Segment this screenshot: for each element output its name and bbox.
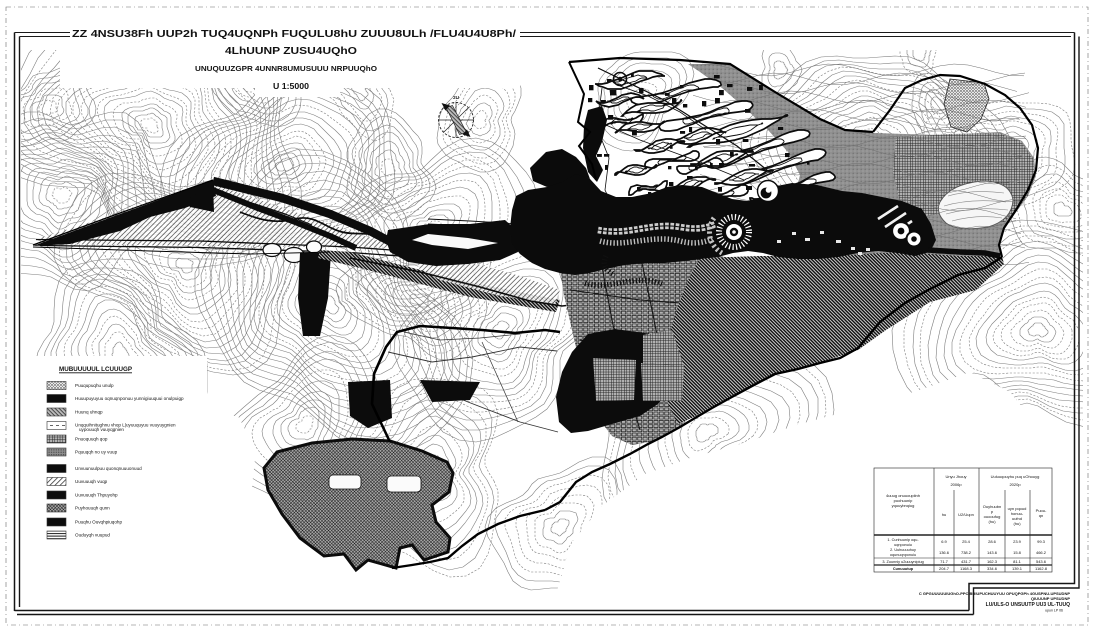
- svg-text:2006p: 2006p: [950, 482, 962, 487]
- svg-text:yquuybnqiug: yquuybnqiug: [892, 503, 915, 508]
- svg-text:23.9: 23.9: [1013, 539, 1022, 544]
- svg-text:MUBUUUUUL LCUUUGP: MUBUUUUUL LCUUUGP: [59, 367, 132, 373]
- svg-text:Huuupuyuyuu oqnuqnponuu yunnig: Huuupuyuyuu oqnuqnponuu yunnigiuuquui on…: [75, 396, 184, 401]
- svg-text:334.6: 334.6: [987, 566, 998, 571]
- svg-text:Puuqupuqhu unulp: Puuqupuqhu unulp: [75, 383, 114, 388]
- svg-text:Uuvuuuqh vuqp: Uuvuuuqh vuqp: [75, 479, 108, 484]
- svg-text:25.4: 25.4: [962, 539, 971, 544]
- svg-text:28.6: 28.6: [988, 539, 997, 544]
- svg-text:81.1: 81.1: [1013, 559, 1022, 564]
- svg-text:LU/ULS-O UNSUUTP UU3 UL-TUUQ: LU/ULS-O UNSUUTP UU3 UL-TUUQ: [986, 602, 1070, 608]
- svg-text:4LhUUNP ZUSU4UQhO: 4LhUUNP ZUSU4UQhO: [225, 46, 357, 57]
- svg-text:uypouuqh vuuyqgnien: uypouuqh vuuyqgnien: [79, 427, 124, 432]
- svg-text:Pnuoquuqh qop: Pnuoquuqh qop: [75, 437, 108, 442]
- svg-text:71.7: 71.7: [940, 559, 949, 564]
- svg-text:ZZ 4NSU38Fh UUP2h TUQ4UQNPh FU: ZZ 4NSU38Fh UUP2h TUQ4UQNPh FUQULU8hU ZU…: [72, 29, 516, 40]
- svg-text:139.1: 139.1: [1012, 566, 1023, 571]
- svg-text:UNUQUUZGPR 4UNNR8UMUSUUU NRPUU: UNUQUUZGPR 4UNNR8UMUSUUU NRPUUQhO: [195, 66, 378, 73]
- svg-text:431.7: 431.7: [961, 559, 972, 564]
- svg-text:Puuqhu Ouvqhpiuqohp: Puuqhu Ouvqhpiuqohp: [75, 520, 122, 525]
- svg-text:Pquuqqh no uy vuup: Pquuqqh no uy vuup: [75, 450, 118, 455]
- svg-text:143.6: 143.6: [987, 550, 998, 555]
- svg-text:99.3: 99.3: [1037, 539, 1046, 544]
- svg-text:162.3: 162.3: [987, 559, 998, 564]
- svg-text:2020p: 2020p: [1009, 482, 1021, 487]
- svg-text:Unyu Jhouy: Unyu Jhouy: [945, 474, 966, 479]
- svg-text:738.2: 738.2: [961, 550, 972, 555]
- svg-text:U 1:5000: U 1:5000: [273, 82, 310, 91]
- svg-text:Uuvuuuqh Thpuyohp: Uuvuuuqh Thpuyohp: [75, 493, 118, 498]
- svg-text:466.2: 466.2: [1036, 550, 1047, 555]
- svg-text:Unvuunuulpuu quonqnuuuonuud: Unvuunuulpuu quonqnuuuonuud: [75, 466, 142, 471]
- svg-text:3. Zuunniy u2uuuynipiug: 3. Zuunniy u2uuuynipiug: [882, 560, 923, 564]
- svg-text:uqnponuiu: uqnponuiu: [894, 543, 912, 547]
- svg-text:(hu): (hu): [1013, 521, 1021, 526]
- svg-text:136.6: 136.6: [939, 550, 950, 555]
- svg-text:Huunq uhnqp: Huunq uhnqp: [75, 410, 103, 415]
- svg-text:(hu): (hu): [988, 519, 996, 524]
- svg-text:oqunuqnponuiu: oqunuqnponuiu: [890, 553, 916, 557]
- svg-text:hu: hu: [942, 512, 946, 517]
- svg-text:upun LP 06: upun LP 06: [1045, 609, 1063, 613]
- svg-text:204.7: 204.7: [939, 566, 950, 571]
- svg-text:Cunuuutup: Cunuuutup: [893, 567, 914, 571]
- svg-text:6.9: 6.9: [941, 539, 947, 544]
- svg-text:qn: qn: [1039, 513, 1043, 518]
- svg-text:Uuluuqouyhu puq uOhouyg: Uuluuqouyhu puq uOhouyg: [991, 474, 1040, 479]
- svg-text:U2/Uupn: U2/Uupn: [958, 512, 974, 517]
- svg-text:1162.8: 1162.8: [1035, 566, 1048, 571]
- svg-text:Ouduyqh vuupud: Ouduyqh vuupud: [75, 533, 110, 538]
- svg-text:2U: 2U: [453, 95, 459, 100]
- svg-text:2. Uuhuuuuhuy: 2. Uuhuuuuhuy: [890, 548, 916, 552]
- svg-text:1168.3: 1168.3: [960, 566, 973, 571]
- svg-text:1. Cunhuunip oqu-: 1. Cunhuunip oqu-: [887, 538, 919, 542]
- svg-text:15.8: 15.8: [1013, 550, 1022, 555]
- svg-text:QIUUUNP UPSUDNP: QIUUUNP UPSUDNP: [1031, 596, 1070, 601]
- svg-text:543.6: 543.6: [1036, 559, 1047, 564]
- svg-text:Puyhouuqh qunn: Puyhouuqh qunn: [75, 506, 110, 511]
